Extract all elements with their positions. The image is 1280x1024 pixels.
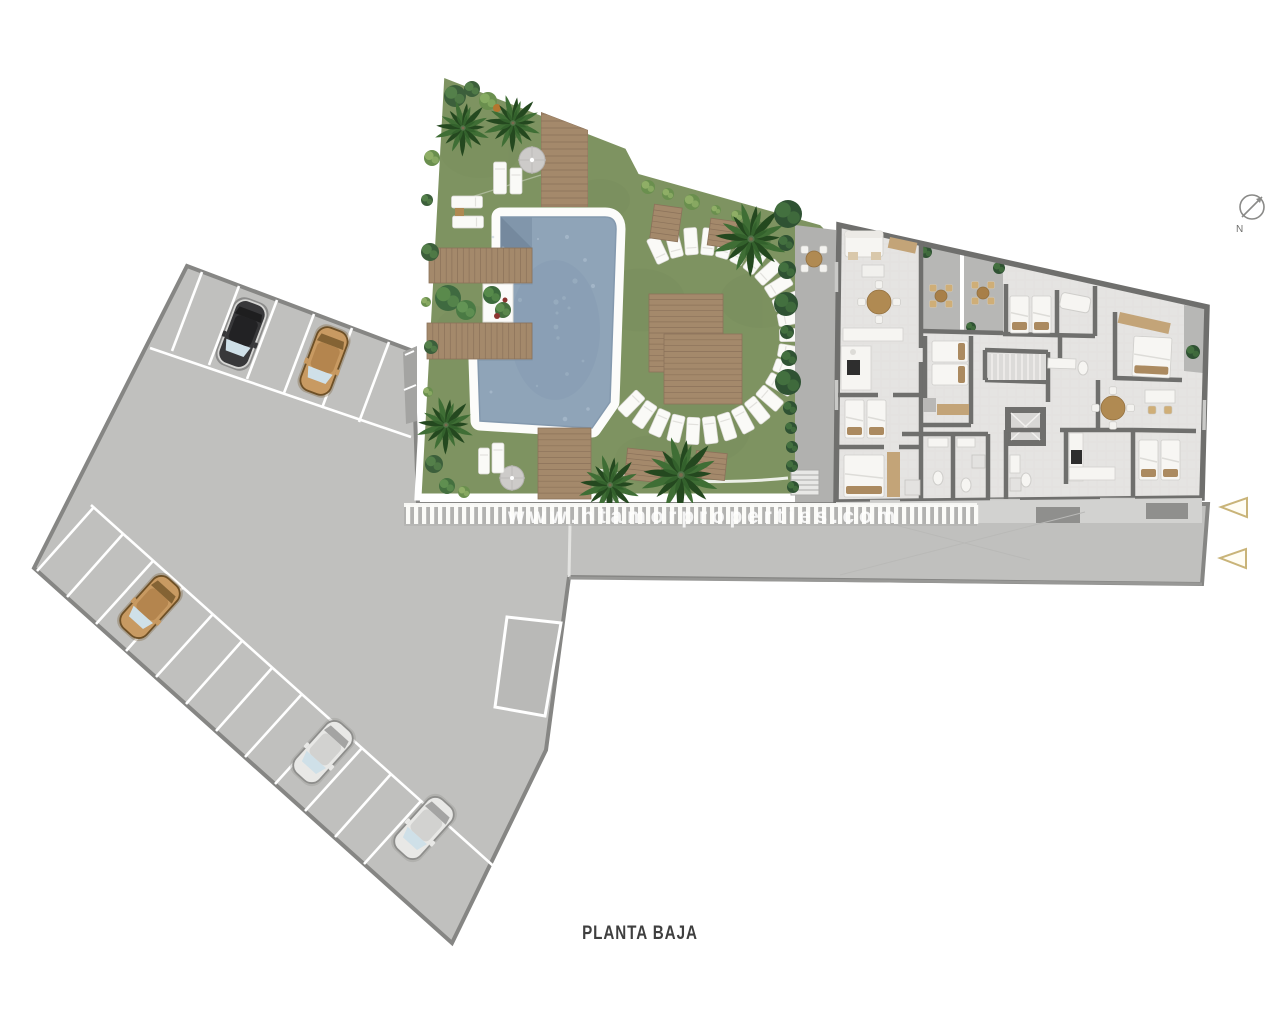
svg-text:PLANTA BAJA: PLANTA BAJA — [582, 921, 698, 943]
svg-text:N: N — [1236, 224, 1243, 235]
svg-text:www.htamorproperties.com: www.htamorproperties.com — [507, 505, 900, 528]
